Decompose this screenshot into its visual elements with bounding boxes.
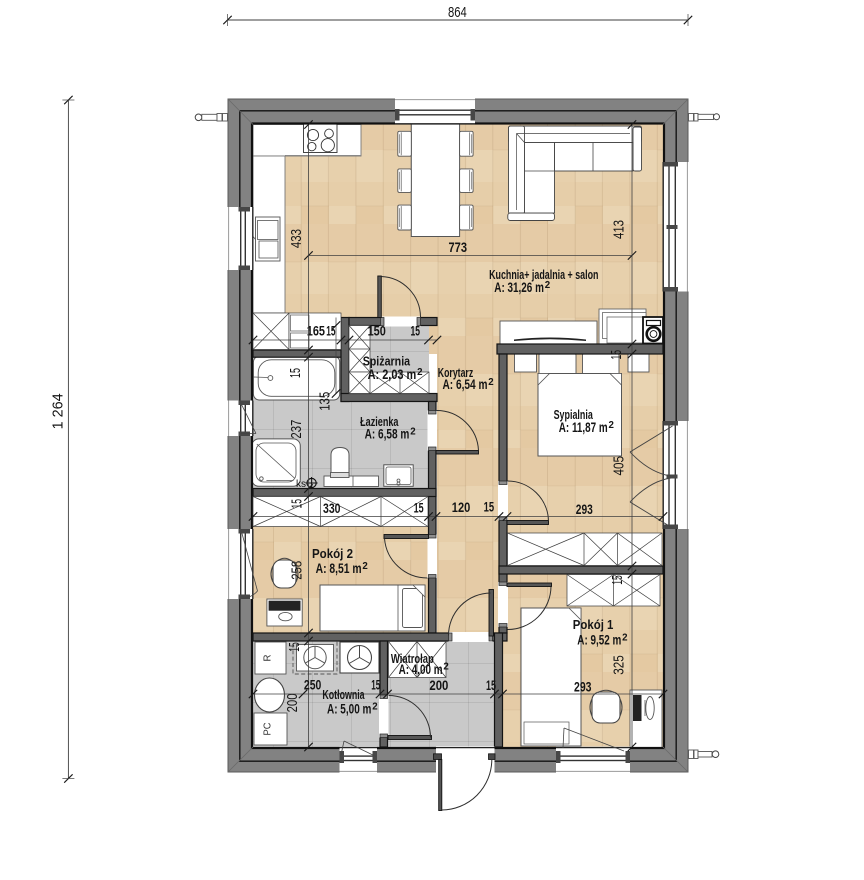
svg-text:15: 15 bbox=[288, 368, 304, 378]
svg-text:864: 864 bbox=[448, 4, 467, 21]
svg-text:293: 293 bbox=[576, 502, 593, 517]
svg-text:Kotłownia: Kotłownia bbox=[322, 688, 365, 702]
svg-text:15: 15 bbox=[326, 324, 335, 339]
svg-text:A: 6,58 m: A: 6,58 m bbox=[365, 427, 410, 442]
svg-text:2: 2 bbox=[362, 561, 368, 572]
svg-text:A: 9,52 m: A: 9,52 m bbox=[577, 633, 621, 648]
svg-text:293: 293 bbox=[574, 680, 592, 695]
svg-text:2: 2 bbox=[622, 632, 628, 643]
svg-text:ks: ks bbox=[296, 479, 306, 490]
svg-text:2: 2 bbox=[609, 420, 615, 431]
svg-text:2: 2 bbox=[443, 662, 449, 673]
svg-text:150: 150 bbox=[368, 324, 386, 339]
svg-text:135: 135 bbox=[318, 392, 334, 411]
svg-text:Pokój 1: Pokój 1 bbox=[573, 618, 614, 632]
svg-text:2: 2 bbox=[417, 367, 423, 378]
svg-text:325: 325 bbox=[612, 655, 628, 675]
svg-text:258: 258 bbox=[290, 561, 306, 580]
svg-text:2: 2 bbox=[545, 280, 551, 291]
svg-text:773: 773 bbox=[449, 240, 468, 255]
svg-text:1 264: 1 264 bbox=[50, 393, 67, 429]
svg-text:A: 31,26 m: A: 31,26 m bbox=[494, 280, 544, 295]
svg-text:200: 200 bbox=[429, 678, 448, 693]
svg-text:433: 433 bbox=[289, 229, 305, 248]
svg-text:A: 2,03 m: A: 2,03 m bbox=[368, 367, 417, 382]
svg-text:15: 15 bbox=[287, 642, 303, 652]
svg-text:A: 6,54 m: A: 6,54 m bbox=[443, 377, 488, 392]
svg-text:15: 15 bbox=[610, 575, 626, 585]
svg-text:15: 15 bbox=[486, 678, 496, 693]
svg-text:A: 5,00 m: A: 5,00 m bbox=[327, 702, 371, 717]
svg-text:200: 200 bbox=[285, 693, 301, 712]
svg-text:2: 2 bbox=[488, 377, 494, 388]
svg-text:413: 413 bbox=[612, 220, 628, 239]
svg-text:A: 8,51 m: A: 8,51 m bbox=[316, 561, 362, 576]
svg-text:120: 120 bbox=[452, 500, 471, 515]
svg-text:15: 15 bbox=[371, 677, 380, 692]
svg-text:237: 237 bbox=[289, 420, 305, 439]
svg-text:PC: PC bbox=[262, 723, 273, 736]
svg-text:405: 405 bbox=[612, 456, 628, 476]
svg-text:A: 11,87 m: A: 11,87 m bbox=[559, 420, 608, 435]
svg-text:15: 15 bbox=[609, 350, 625, 360]
svg-text:R: R bbox=[263, 655, 274, 662]
svg-text:250: 250 bbox=[304, 677, 321, 692]
svg-text:330: 330 bbox=[323, 501, 341, 516]
svg-text:165: 165 bbox=[307, 324, 326, 339]
svg-text:2: 2 bbox=[372, 701, 378, 712]
svg-text:Pokój 2: Pokój 2 bbox=[312, 547, 353, 561]
svg-text:15: 15 bbox=[411, 324, 421, 339]
svg-text:15: 15 bbox=[484, 500, 495, 515]
svg-text:A: 4,00 m: A: 4,00 m bbox=[399, 662, 443, 677]
svg-text:15: 15 bbox=[414, 501, 424, 516]
svg-text:15: 15 bbox=[290, 499, 306, 509]
svg-text:2: 2 bbox=[410, 426, 416, 437]
